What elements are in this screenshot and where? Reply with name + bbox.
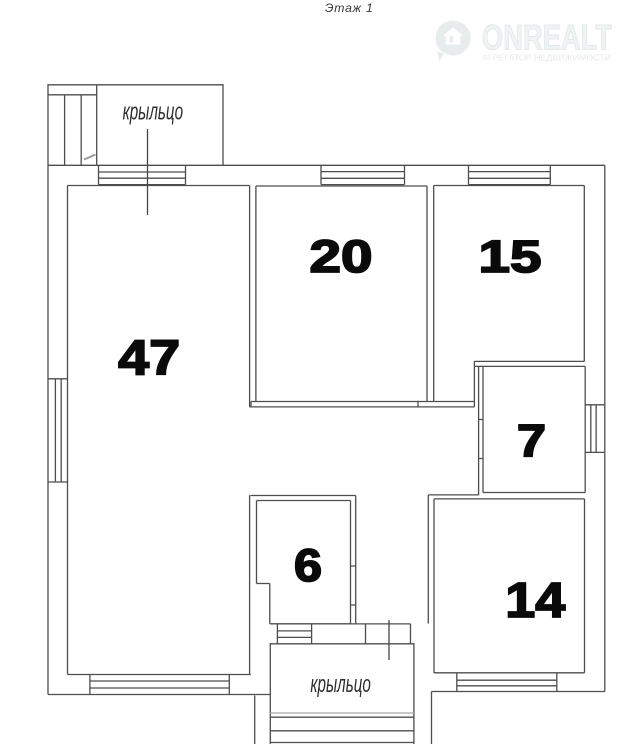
svg-text:АГРЕГАТОР НЕДВИЖИМОСТИ: АГРЕГАТОР НЕДВИЖИМОСТИ — [482, 54, 611, 63]
svg-text:крыльцо: крыльцо — [310, 672, 370, 698]
svg-text:6: 6 — [294, 540, 322, 591]
svg-text:ONREALT: ONREALT — [482, 19, 612, 58]
svg-text:14: 14 — [505, 573, 566, 628]
svg-text:Этаж 1: Этаж 1 — [325, 1, 374, 15]
svg-text:20: 20 — [310, 231, 373, 282]
svg-text:47: 47 — [118, 331, 180, 386]
svg-text:15: 15 — [479, 231, 542, 282]
svg-text:7: 7 — [517, 415, 546, 466]
svg-text:крыльцо: крыльцо — [123, 99, 183, 125]
